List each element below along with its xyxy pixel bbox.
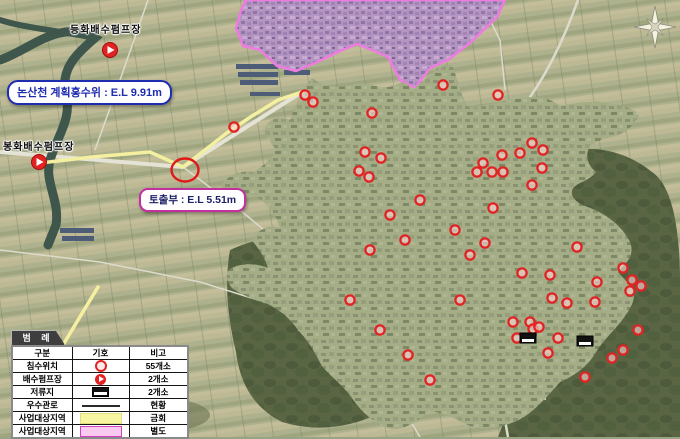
legend-title: 범 례 — [11, 330, 65, 345]
flood-location-marker — [375, 325, 384, 334]
map-stage: 등화배수펌프장 봉화배수펌프장 논산천 계획홍수위 : E.L 9.91m 토출… — [0, 0, 680, 437]
pump-marker-icon — [95, 374, 106, 385]
flood-location-marker — [590, 297, 599, 306]
flood-location-marker — [308, 97, 317, 106]
legend-row-note: 2개소 — [129, 386, 188, 399]
legend-row: 저류지2개소 — [12, 386, 188, 399]
pump-station-marker — [103, 43, 118, 58]
legend-row-label: 저류지 — [12, 386, 72, 399]
reservoir-marker-icon — [92, 387, 109, 397]
flood-location-marker — [618, 345, 627, 354]
flood-location-marker — [547, 293, 556, 302]
flood-location-marker — [534, 322, 543, 331]
flood-location-marker — [478, 158, 487, 167]
flood-location-marker — [385, 210, 394, 219]
flood-location-marker — [562, 298, 571, 307]
legend-row-label: 사업대상지역 — [12, 425, 72, 439]
flood-location-marker — [488, 203, 497, 212]
legend: 범 례 구분 기호 비고 침수위치55개소배수펌프장2개소저류지2개소우수관로현… — [11, 330, 187, 439]
legend-row-symbol — [72, 425, 129, 439]
legend-table: 구분 기호 비고 침수위치55개소배수펌프장2개소저류지2개소우수관로현황사업대… — [11, 345, 189, 439]
flood-location-marker — [545, 270, 554, 279]
legend-row-note: 2개소 — [129, 373, 188, 386]
flood-location-marker — [360, 147, 369, 156]
flood-location-marker — [364, 172, 373, 181]
legend-row-symbol — [72, 399, 129, 412]
flood-location-marker — [508, 317, 517, 326]
flood-location-marker — [498, 167, 507, 176]
pipe-line-icon — [82, 405, 120, 407]
flood-location-marker — [438, 80, 447, 89]
area-current-swatch — [80, 413, 122, 424]
flood-location-marker — [345, 295, 354, 304]
flood-location-marker — [472, 167, 481, 176]
legend-row: 배수펌프장2개소 — [12, 373, 188, 386]
legend-row-label: 배수펌프장 — [12, 373, 72, 386]
legend-row-label: 우수관로 — [12, 399, 72, 412]
legend-row: 우수관로현황 — [12, 399, 188, 412]
flood-location-marker — [300, 90, 309, 99]
flood-location-marker — [517, 268, 526, 277]
legend-row-note: 금회 — [129, 412, 188, 425]
reservoir-marker — [520, 333, 536, 343]
legend-header-note: 비고 — [129, 346, 188, 360]
flood-location-marker — [365, 245, 374, 254]
flood-level-callout: 논산천 계획홍수위 : E.L 9.91m — [7, 80, 172, 105]
flood-location-marker — [625, 286, 634, 295]
legend-row-symbol — [72, 412, 129, 425]
legend-row-symbol — [72, 360, 129, 373]
legend-row: 사업대상지역금회 — [12, 412, 188, 425]
legend-row-symbol — [72, 386, 129, 399]
legend-row: 사업대상지역별도 — [12, 425, 188, 439]
pump-station-label-deunghwa: 등화배수펌프장 — [70, 21, 141, 36]
legend-row-note: 55개소 — [129, 360, 188, 373]
flood-location-marker — [425, 375, 434, 384]
flood-location-marker — [376, 153, 385, 162]
flood-location-marker — [627, 275, 636, 284]
flood-location-marker — [403, 350, 412, 359]
flood-location-marker — [480, 238, 489, 247]
outlet-elevation-callout: 토출부 : E.L 5.51m — [139, 188, 246, 212]
flood-location-marker — [592, 277, 601, 286]
flood-location-marker — [618, 263, 627, 272]
pump-station-marker — [32, 155, 47, 170]
flood-location-marker — [455, 295, 464, 304]
pump-station-label-bonghwa: 봉화배수펌프장 — [3, 138, 74, 153]
flood-location-marker — [229, 122, 238, 131]
flood-location-marker — [633, 325, 642, 334]
flood-location-marker — [400, 235, 409, 244]
flood-location-marker — [497, 150, 506, 159]
flood-location-marker — [607, 353, 616, 362]
flood-location-marker — [354, 166, 363, 175]
flood-location-marker — [543, 348, 552, 357]
flood-marker-icon — [95, 360, 107, 372]
flood-location-marker — [537, 163, 546, 172]
legend-row-note: 별도 — [129, 425, 188, 439]
legend-row-symbol — [72, 373, 129, 386]
legend-header-symbol: 기호 — [72, 346, 129, 360]
flood-location-marker — [465, 250, 474, 259]
flood-location-marker — [553, 333, 562, 342]
flood-location-marker — [538, 145, 547, 154]
legend-row: 침수위치55개소 — [12, 360, 188, 373]
legend-row-label: 침수위치 — [12, 360, 72, 373]
legend-header-row: 구분 기호 비고 — [12, 346, 188, 360]
legend-row-label: 사업대상지역 — [12, 412, 72, 425]
flood-location-marker — [636, 281, 645, 290]
flood-location-marker — [450, 225, 459, 234]
legend-row-note: 현황 — [129, 399, 188, 412]
flood-location-marker — [580, 372, 589, 381]
legend-header-category: 구분 — [12, 346, 72, 360]
flood-location-marker — [367, 108, 376, 117]
flood-location-marker — [527, 138, 536, 147]
reservoir-marker — [577, 336, 593, 346]
flood-location-marker — [415, 195, 424, 204]
flood-location-marker — [493, 90, 502, 99]
flood-location-marker — [487, 167, 496, 176]
flood-location-marker — [515, 148, 524, 157]
flood-location-marker — [527, 180, 536, 189]
area-separate-swatch — [80, 426, 122, 437]
flood-location-marker — [572, 242, 581, 251]
